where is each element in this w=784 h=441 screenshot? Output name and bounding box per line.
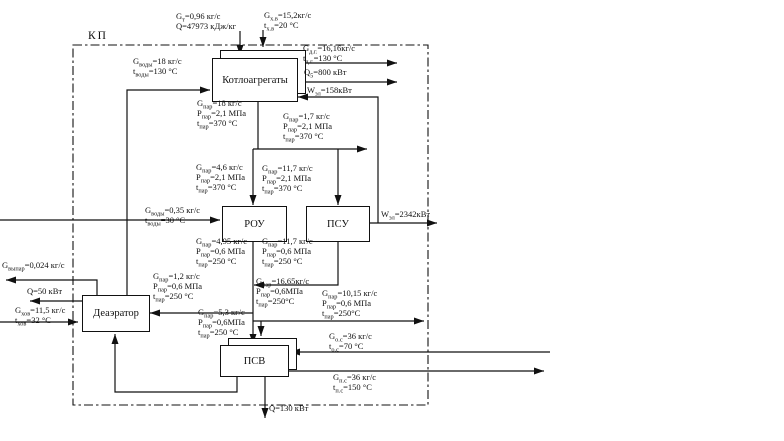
stream-label-injection: Gводы=0,35 кг/с tводы=30 °С bbox=[145, 206, 200, 226]
stream-label-network-return: Gо.с=36 кг/с tо.с=70 °С bbox=[329, 332, 372, 352]
stream-label-w-out: Wэл=2342кВт bbox=[381, 210, 430, 220]
stream-label-fuel: Gт=0,96 кг/с Q=47973 кДж/кг bbox=[176, 12, 236, 32]
rou-label: РОУ bbox=[244, 219, 264, 230]
stream-label-psu-out: Gпар=11,7 кг/с Pпар=0,6 МПа tпар=250 °С bbox=[262, 237, 313, 266]
stream-label-vypar: Gвыпар=0,024 кг/с bbox=[2, 261, 64, 271]
boilers-label: Котлоагрегаты bbox=[222, 75, 288, 86]
stream-label-q-psv: Q=130 кВт bbox=[269, 404, 308, 414]
boilers-block: Котлоагрегаты bbox=[212, 58, 298, 102]
stream-label-psu-in: Gпар=11,7 кг/с Pпар=2,1 МПа tпар=370 °С bbox=[262, 164, 313, 193]
stream-label-header-06: Gпар=16,65кг/с Pпар=0,6МПа tпар=250°С bbox=[256, 277, 309, 306]
stream-label-steam-main: Gпар=18 кг/с Pпар=2,1 МПа tпар=370 °С bbox=[197, 99, 246, 128]
boundary-label: КП bbox=[88, 30, 108, 42]
stream-label-rou-out: Gпар=4,95 кг/с Pпар=0,6 МПа tпар=250 °С bbox=[196, 237, 247, 266]
stream-label-q-boiler: Q5=800 кВт bbox=[304, 68, 346, 78]
stream-label-network-supply: Gп.с=36 кг/с tп.с=150 °С bbox=[333, 373, 376, 393]
stream-label-rou-in: Gпар=4,6 кг/с Pпар=2,1 МПа tпар=370 °С bbox=[196, 163, 245, 192]
stream-label-w-boiler: Wэл=158кВт bbox=[307, 86, 352, 96]
stream-label-q-deaerator: Q=50 кВт bbox=[27, 287, 62, 297]
psu-block: ПСУ bbox=[306, 206, 370, 242]
flow-diagram: Котлоагрегаты РОУ ПСУ Деаэратор ПСВ КП G… bbox=[0, 0, 784, 441]
stream-label-steam-export-21: Gпар=1,7 кг/с Pпар=2,1 МПа tпар=370 °С bbox=[283, 112, 332, 141]
stream-label-flue-gas: Gд.г.=16,16кг/с tд.г.=130 °С bbox=[303, 44, 355, 64]
stream-label-psv-steam: Gпар=5,3 кг/с Pпар=0,6МПа tпар=250 °С bbox=[198, 308, 245, 337]
deaerator-block: Деаэратор bbox=[82, 295, 150, 332]
pipe-condensate-to-deaerator bbox=[115, 334, 237, 392]
stream-label-steam-consumer: Gпар=10,15 кг/с Pпар=0,6 МПа tпар=250°С bbox=[322, 289, 377, 318]
psu-label: ПСУ bbox=[327, 219, 349, 230]
stream-label-hov-water: Gхов=11,5 кг/с tхов=32 °С bbox=[15, 306, 65, 326]
stream-label-feedwater: Gводы=18 кг/с tводы=130 °С bbox=[133, 57, 182, 77]
stream-label-deaer-steam: Gпар=1,2 кг/с Pпар=0,6 МПа tпар=250 °С bbox=[153, 272, 202, 301]
stream-label-cold-air: Gх.в=15,2кг/с tх.в=20 °С bbox=[264, 11, 311, 31]
psv-label: ПСВ bbox=[244, 356, 266, 367]
deaerator-label: Деаэратор bbox=[93, 308, 139, 319]
psv-block: ПСВ bbox=[220, 345, 289, 377]
